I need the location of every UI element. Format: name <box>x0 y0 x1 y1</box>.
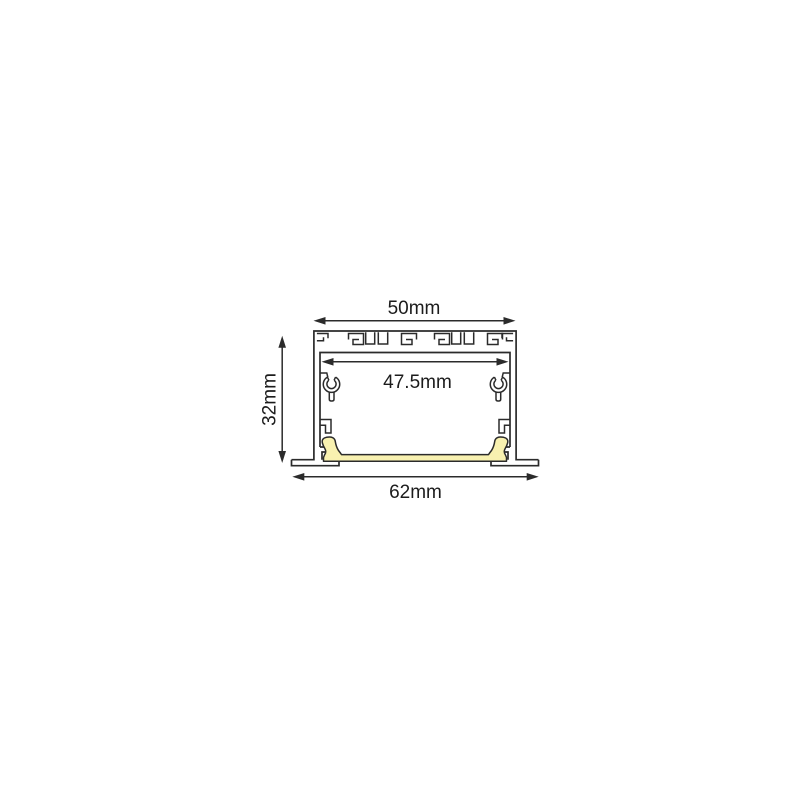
canvas: 50mm 47.5mm 32mm 62mm <box>0 0 800 800</box>
arrowhead-right <box>527 473 539 481</box>
fin-cluster-left <box>349 332 417 344</box>
arrowhead-top <box>278 336 286 348</box>
lower-hook-left <box>320 420 331 434</box>
screw-port-right <box>490 373 510 401</box>
dimension-label-top-width: 50mm <box>388 298 441 319</box>
corner-hook-left <box>317 334 328 341</box>
profile-cross-section-diagram: 50mm 47.5mm 32mm 62mm <box>0 0 800 800</box>
dimension-label-inner-width: 47.5mm <box>383 372 452 393</box>
dimension-label-overall-width: 62mm <box>389 482 442 503</box>
diffuser-cover <box>322 437 508 461</box>
arrowhead-bottom <box>278 451 286 463</box>
arrowhead-left <box>314 317 326 325</box>
corner-hook-right <box>502 334 513 341</box>
arrowhead-right <box>497 358 509 366</box>
lower-hook-right <box>499 420 510 434</box>
fin-cluster-right <box>435 332 503 344</box>
dimension-inner-width: 47.5mm <box>322 358 509 393</box>
inner-walls-and-ceiling <box>320 353 510 448</box>
dimension-overall-width: 62mm <box>292 473 538 503</box>
dimension-label-height: 32mm <box>260 373 281 426</box>
arrowhead-left <box>292 473 304 481</box>
arrowhead-right <box>504 317 516 325</box>
screw-port-left <box>320 373 340 401</box>
arrowhead-left <box>322 358 334 366</box>
dimension-height: 32mm <box>260 336 287 463</box>
dimension-top-width: 50mm <box>314 298 516 325</box>
